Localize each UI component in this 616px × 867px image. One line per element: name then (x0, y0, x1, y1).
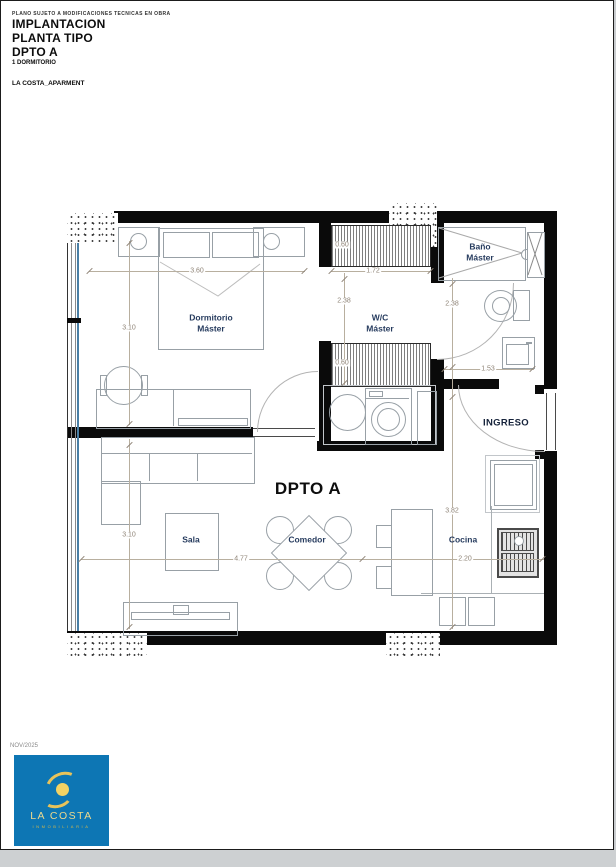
date-label: NOV/2025 (10, 743, 38, 749)
room-label-dormitorio-line1: Dormitorio (189, 312, 232, 323)
stove-burner-dial (514, 536, 524, 546)
washer-knob (369, 391, 383, 397)
wall-right-lower (544, 451, 557, 645)
dim-closet-bottom: 0.60 (334, 360, 350, 367)
dim-dorm-width: 3.60 (189, 268, 205, 275)
fridge-inner (494, 464, 533, 506)
room-label-wc-line2: Máster (366, 323, 393, 334)
stipple-top-left (67, 213, 118, 243)
room-label-comedor: Comedor (288, 535, 325, 546)
sofa-body (101, 437, 255, 484)
dim-closet-top: 0.60 (334, 242, 350, 249)
wall-right-upper (544, 211, 557, 391)
counter-edge-right (491, 506, 492, 594)
chair-arm-right (141, 375, 148, 396)
stipple-bottom-mid (386, 633, 440, 657)
dim-wc-height: 2.38 (336, 298, 352, 305)
room-label-bano: Baño Máster (466, 241, 493, 262)
desk-chair (104, 366, 143, 405)
vanity-basin (506, 344, 529, 365)
wall-dorm-wc-upper (319, 223, 331, 267)
dim-line-wc-height (344, 273, 345, 385)
lamp-left (130, 233, 147, 250)
counter-edge-bottom (421, 593, 544, 594)
sofa-cushion-line-1 (149, 454, 150, 481)
dorm-door-swing (257, 371, 318, 432)
dim-bano-height: 2.38 (444, 301, 460, 308)
pillow-right (212, 232, 259, 258)
sink-basin-right (468, 597, 495, 626)
sofa-cushion-line-2 (197, 454, 198, 481)
dim-line-dorm-height (129, 241, 130, 425)
room-label-ingreso: INGRESO (483, 418, 529, 429)
bed-cover-fold (158, 258, 262, 300)
room-label-dormitorio: Dormitorio Máster (189, 312, 232, 333)
tv-screen (131, 612, 230, 620)
dim-bano-width: 1.53 (480, 366, 496, 373)
desk-drawer (178, 418, 248, 426)
dim-line-bano-cocina-height (452, 278, 453, 629)
dim-sala-height: 3.10 (121, 532, 137, 539)
room-label-bano-line2: Máster (466, 252, 493, 263)
dim-cocina-width: 2.20 (457, 556, 473, 563)
dim-tick (301, 268, 307, 274)
room-label-sala: Sala (182, 535, 200, 546)
dim-line-wc-width (331, 271, 431, 272)
stipple-bottom-left (67, 633, 147, 657)
room-label-cocina: Cocina (449, 535, 477, 546)
room-label-bano-line1: Baño (466, 241, 493, 252)
dim-dorm-height: 3.10 (121, 325, 137, 332)
duct-shaft-cross (527, 232, 543, 276)
stool-2 (376, 566, 392, 589)
dim-cocina-height: 3.82 (444, 508, 460, 515)
wall-top (114, 211, 557, 223)
room-label-wc: W/C Máster (366, 312, 393, 333)
washer-panel-line (366, 398, 409, 399)
screenshot-stage: PLANO SUJETO A MODIFICACIONES TECNICAS E… (0, 0, 616, 867)
wave-sun-icon (42, 772, 82, 806)
room-label-wc-line1: W/C (366, 312, 393, 323)
lamp-right (263, 233, 280, 250)
room-label-dormitorio-line2: Máster (189, 323, 232, 334)
washer-drum-inner (377, 408, 400, 431)
logo-subtitle: INMOBILIARIA (32, 824, 90, 829)
dim-sala-width: 4.77 (233, 556, 249, 563)
entry-door-leaf (546, 393, 556, 450)
laundry-basin (329, 394, 366, 431)
sofa-back-line (102, 453, 252, 454)
floor-plan: 3.60 1.72 3.10 2.38 0.60 0.60 2.38 1.53 … (1, 1, 613, 849)
stove-burners-bottom (501, 553, 534, 572)
vanity-faucet (526, 342, 532, 344)
logo-title: LA COSTA (30, 810, 93, 822)
desk-divider (173, 390, 174, 426)
kitchen-island (391, 509, 433, 596)
window-wall (67, 223, 82, 631)
dim-wc-width: 1.72 (365, 268, 381, 275)
chair-arm-left (100, 375, 107, 396)
dim-line-sala-cocina-width (81, 559, 544, 560)
toilet-bowl-inner (492, 297, 510, 315)
sofa-chaise (101, 481, 141, 525)
plan-sheet: PLANO SUJETO A MODIFICACIONES TECNICAS E… (0, 0, 614, 850)
stool-1 (376, 525, 392, 548)
laundry-cabinet (417, 391, 437, 445)
company-logo: LA COSTA INMOBILIARIA (14, 755, 109, 846)
pillow-left (163, 232, 210, 258)
window-mullion (67, 318, 81, 323)
sun-circle (56, 783, 69, 796)
unit-label: DPTO A (275, 479, 341, 499)
desk-background (0, 850, 616, 867)
